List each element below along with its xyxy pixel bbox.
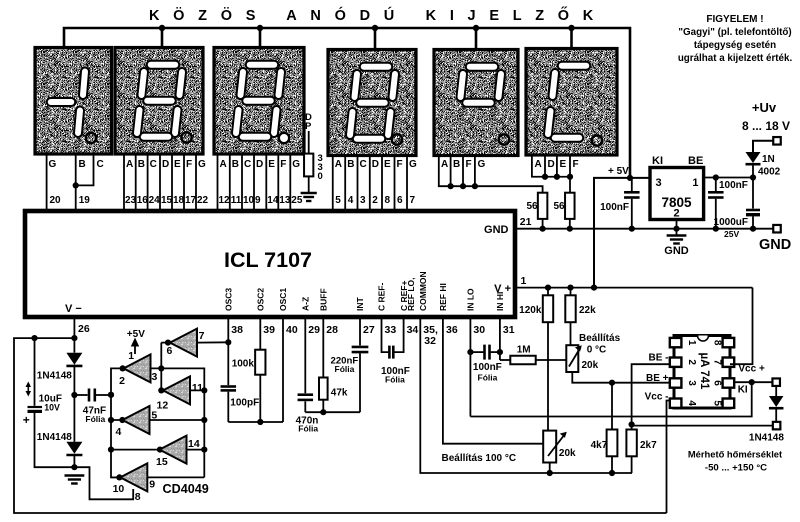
svg-text:+ 5V: + 5V [608, 166, 629, 177]
svg-text:11: 11 [192, 382, 203, 394]
svg-text:27: 27 [363, 324, 375, 336]
svg-text:E: E [174, 159, 181, 170]
svg-text:B: B [347, 159, 354, 170]
svg-text:15: 15 [161, 195, 173, 206]
svg-text:1N4148: 1N4148 [37, 371, 72, 382]
svg-text:IN HI: IN HI [495, 292, 505, 311]
svg-text:B: B [453, 159, 460, 170]
svg-text:19: 19 [79, 195, 91, 206]
svg-text:100pF: 100pF [230, 398, 259, 409]
svg-text:GND: GND [759, 237, 791, 253]
svg-text:Mérhető hőmérséklet: Mérhető hőmérséklet [688, 449, 782, 460]
svg-text:GND: GND [484, 224, 509, 236]
svg-text:10: 10 [113, 483, 125, 495]
svg-text:20k: 20k [582, 360, 599, 371]
svg-text:4: 4 [348, 195, 354, 206]
svg-text:2: 2 [372, 195, 378, 206]
svg-text:5: 5 [151, 410, 157, 422]
svg-text:GND: GND [664, 245, 689, 257]
svg-text:Fólia: Fólia [385, 375, 405, 385]
svg-text:FIGYELEM !: FIGYELEM ! [706, 14, 763, 25]
svg-text:D: D [256, 159, 263, 170]
svg-text:Vcc +: Vcc + [738, 364, 765, 375]
svg-text:KI: KI [738, 385, 748, 396]
svg-text:BE +: BE + [646, 373, 669, 384]
svg-text:18: 18 [173, 195, 185, 206]
svg-text:24: 24 [149, 195, 161, 206]
svg-text:15: 15 [156, 456, 168, 468]
svg-text:3: 3 [152, 371, 158, 383]
svg-text:6: 6 [167, 345, 173, 357]
svg-text:1: 1 [128, 350, 134, 362]
svg-text:29: 29 [308, 324, 320, 336]
svg-text:7: 7 [199, 330, 205, 342]
svg-text:26: 26 [78, 323, 90, 335]
svg-text:F: F [397, 159, 403, 170]
svg-text:40: 40 [286, 324, 298, 336]
svg-text:6: 6 [397, 195, 403, 206]
svg-text:7: 7 [410, 195, 416, 206]
svg-text:+5V: +5V [127, 329, 145, 340]
svg-text:REF HI: REF HI [438, 283, 448, 311]
svg-text:32: 32 [424, 335, 436, 347]
svg-text:22: 22 [197, 195, 209, 206]
svg-text:D: D [162, 159, 169, 170]
svg-text:7: 7 [711, 359, 722, 365]
svg-text:25: 25 [291, 195, 303, 206]
svg-text:5: 5 [711, 400, 722, 406]
svg-text:4002: 4002 [758, 167, 781, 178]
svg-text:Fólia: Fólia [335, 364, 355, 374]
svg-text:B: B [138, 159, 145, 170]
svg-text:12: 12 [157, 400, 169, 412]
svg-text:A: A [220, 159, 227, 170]
svg-text:12: 12 [219, 195, 231, 206]
svg-text:Beállítás: Beállítás [579, 333, 621, 344]
svg-text:25V: 25V [724, 229, 739, 239]
svg-text:-50 ... +150 °C: -50 ... +150 °C [705, 463, 767, 474]
svg-text:+: + [23, 413, 30, 427]
svg-text:KÖZÖS ANÓDÚ KIJELZŐK: KÖZÖS ANÓDÚ KIJELZŐK [149, 6, 607, 24]
svg-text:2: 2 [686, 359, 697, 365]
svg-text:C: C [244, 159, 251, 170]
svg-text:11: 11 [231, 195, 242, 206]
svg-text:A: A [126, 159, 133, 170]
svg-text:G: G [198, 159, 206, 170]
svg-text:8: 8 [135, 491, 141, 503]
svg-text:A: A [535, 159, 542, 170]
svg-text:4k7: 4k7 [591, 440, 608, 451]
svg-text:BE: BE [688, 155, 703, 167]
svg-text:2k7: 2k7 [640, 440, 657, 451]
svg-text:F: F [466, 159, 472, 170]
svg-text:33: 33 [385, 324, 397, 336]
svg-text:C: C [150, 159, 157, 170]
svg-text:"Gagyi" (pl. telefontöltő): "Gagyi" (pl. telefontöltő) [678, 27, 791, 38]
svg-text:Fólia: Fólia [478, 373, 498, 383]
svg-text:E: E [384, 159, 391, 170]
svg-text:1: 1 [692, 177, 698, 189]
svg-text:21: 21 [520, 216, 532, 228]
svg-text:INT: INT [355, 297, 365, 312]
svg-text:C REF-: C REF- [377, 283, 387, 312]
svg-text:E: E [560, 159, 567, 170]
svg-text:39: 39 [263, 324, 275, 336]
svg-text:B: B [79, 159, 86, 170]
svg-text:8: 8 [711, 340, 722, 346]
svg-text:V −: V − [65, 303, 82, 315]
svg-text:G: G [478, 159, 486, 170]
svg-text:16: 16 [137, 195, 149, 206]
svg-text:3: 3 [686, 380, 697, 386]
svg-text:G: G [49, 159, 57, 170]
svg-text:30: 30 [473, 324, 485, 336]
svg-text:BE -: BE - [649, 353, 669, 364]
svg-text:23: 23 [125, 195, 137, 206]
svg-text:D: D [548, 159, 555, 170]
svg-text:120k: 120k [519, 305, 542, 316]
svg-text:Fólia: Fólia [85, 414, 105, 424]
svg-text:A: A [335, 159, 342, 170]
svg-text:F: F [280, 159, 286, 170]
svg-text:tápegység esetén: tápegység esetén [694, 40, 776, 51]
svg-text:34: 34 [407, 324, 419, 336]
svg-text:0: 0 [318, 171, 323, 182]
svg-text:COMMON: COMMON [418, 271, 428, 311]
svg-text:KI: KI [652, 155, 663, 167]
svg-text:1: 1 [686, 340, 697, 346]
svg-text:2: 2 [119, 375, 125, 387]
svg-text:ICL 7107: ICL 7107 [224, 248, 312, 272]
svg-text:10: 10 [243, 195, 255, 206]
svg-text:Vcc -: Vcc - [645, 392, 669, 403]
svg-text:4: 4 [116, 426, 122, 438]
svg-text:OSC1: OSC1 [278, 288, 288, 311]
svg-text:100nF: 100nF [600, 202, 629, 213]
svg-text:36: 36 [446, 324, 458, 336]
svg-text:38: 38 [231, 324, 243, 336]
svg-text:10V: 10V [44, 403, 60, 413]
svg-text:G: G [292, 159, 300, 170]
svg-text:20: 20 [50, 195, 62, 206]
svg-text:0 °C: 0 °C [587, 345, 607, 356]
svg-text:47k: 47k [331, 388, 348, 399]
svg-text:14: 14 [188, 438, 200, 450]
svg-text:F: F [186, 159, 192, 170]
svg-text:100nF: 100nF [473, 362, 502, 373]
svg-text:1N4148: 1N4148 [749, 433, 784, 444]
svg-text:1N: 1N [762, 154, 775, 165]
svg-text:A-Z: A-Z [301, 297, 311, 311]
svg-text:20k: 20k [559, 448, 576, 459]
svg-text:E: E [268, 159, 275, 170]
svg-text:µA 741: µA 741 [698, 353, 710, 390]
svg-text:56: 56 [554, 201, 566, 212]
svg-text:2: 2 [673, 208, 679, 220]
svg-text:4: 4 [686, 400, 697, 406]
svg-text:1: 1 [521, 275, 527, 287]
svg-text:3: 3 [360, 195, 366, 206]
svg-text:17: 17 [185, 195, 197, 206]
svg-text:100k: 100k [232, 359, 255, 370]
svg-text:8: 8 [385, 195, 391, 206]
svg-text:6: 6 [711, 380, 722, 386]
svg-text:C: C [360, 159, 367, 170]
svg-text:G: G [409, 159, 417, 170]
svg-text:CD4049: CD4049 [163, 482, 209, 496]
svg-text:D: D [372, 159, 379, 170]
svg-text:B: B [232, 159, 239, 170]
svg-text:REF LO,: REF LO, [406, 277, 416, 311]
svg-text:IN LO: IN LO [466, 288, 476, 311]
svg-text:BUFF: BUFF [319, 288, 329, 311]
svg-text:5: 5 [335, 195, 341, 206]
svg-text:OSC2: OSC2 [256, 288, 266, 311]
svg-text:9: 9 [255, 195, 261, 206]
svg-text:Fólia: Fólia [298, 424, 318, 434]
svg-text:1N4148: 1N4148 [37, 432, 72, 443]
svg-text:9: 9 [149, 479, 155, 491]
svg-text:OSC3: OSC3 [224, 288, 234, 311]
svg-text:A: A [441, 159, 448, 170]
svg-text:P: P [305, 121, 312, 132]
svg-text:ugrálhat a kijelzett érték.: ugrálhat a kijelzett érték. [678, 53, 793, 64]
svg-text:8 ... 18 V: 8 ... 18 V [742, 119, 790, 133]
svg-text:Beállítás 100 °C: Beállítás 100 °C [442, 453, 517, 464]
svg-text:22k: 22k [579, 305, 596, 316]
svg-text:28: 28 [326, 324, 338, 336]
svg-text:56: 56 [527, 201, 539, 212]
svg-text:13: 13 [279, 195, 291, 206]
svg-text:3: 3 [656, 177, 662, 189]
svg-text:100nF: 100nF [719, 180, 748, 191]
svg-text:1000uF: 1000uF [714, 217, 748, 228]
svg-text:31: 31 [503, 324, 515, 336]
svg-text:1M: 1M [517, 345, 531, 356]
svg-text:14: 14 [267, 195, 279, 206]
svg-text:C: C [97, 159, 104, 170]
svg-text:+Uv: +Uv [752, 100, 777, 115]
svg-text:F: F [573, 159, 579, 170]
